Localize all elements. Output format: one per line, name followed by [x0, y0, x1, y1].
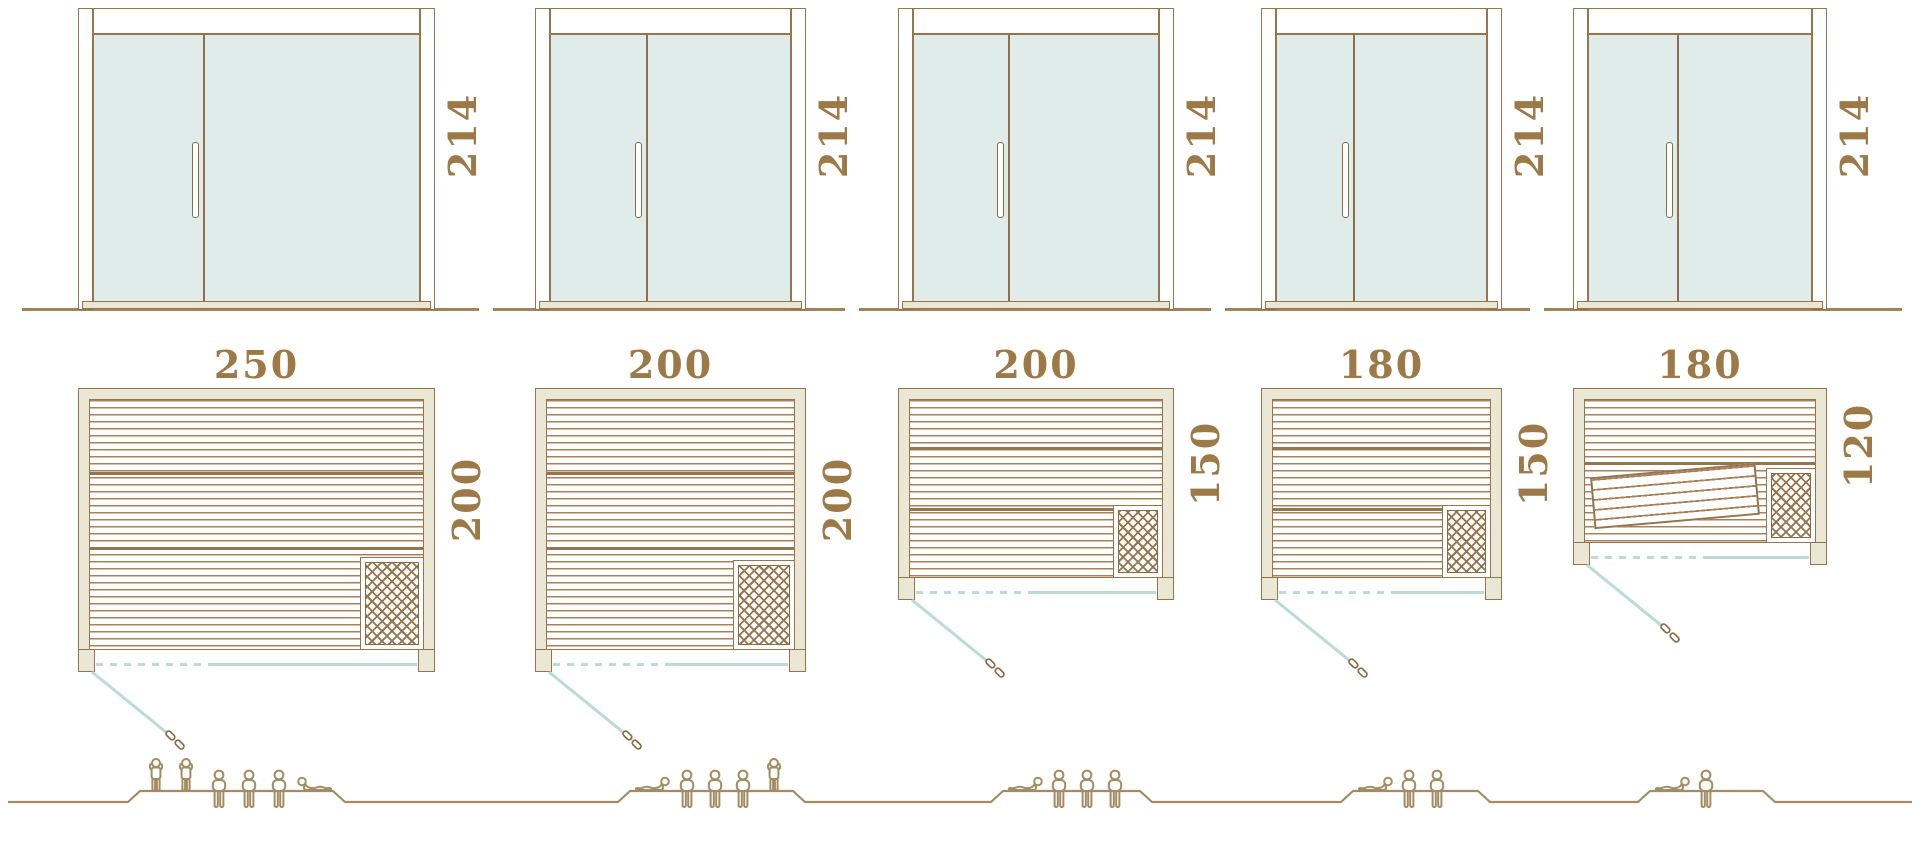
heater-grid — [1447, 510, 1486, 573]
door-height-text: 214 — [1508, 92, 1553, 177]
door-swing-line — [1587, 565, 1667, 630]
bench-edge-line — [90, 547, 423, 550]
person-seated-icon — [243, 771, 255, 807]
door-height-label: 214 — [1176, 8, 1228, 310]
plan-depth-text: 200 — [816, 456, 861, 541]
door-handle-icon — [622, 730, 642, 750]
door-height-label: 214 — [808, 8, 860, 310]
door-sill — [1265, 301, 1498, 309]
plan-left-post — [535, 649, 552, 672]
person-seated-icon — [213, 771, 225, 807]
door-header — [1588, 8, 1812, 34]
door-header — [93, 8, 420, 34]
door-right-post — [791, 8, 806, 310]
fixed-glass-line — [1028, 591, 1156, 594]
door-glass — [1276, 34, 1487, 302]
person-seated-icon — [681, 771, 693, 807]
person-lying-icon — [298, 778, 331, 790]
bench-edge-line — [547, 547, 794, 550]
capacity-group — [1359, 771, 1443, 807]
seating-capacity-ground-line — [8, 791, 1912, 802]
capacity-group — [1009, 771, 1121, 807]
fixed-glass-line — [1391, 591, 1484, 594]
door-swing-line — [912, 600, 992, 665]
plan-left-post — [78, 649, 95, 672]
fixed-glass-line — [665, 663, 788, 666]
door-leaf-divider — [1008, 35, 1010, 301]
door-glass — [1588, 34, 1812, 302]
door-handle — [635, 142, 642, 218]
door-handle-icon — [165, 730, 185, 750]
plan-left-post — [1573, 542, 1590, 565]
heater-grid — [738, 565, 790, 645]
door-handle — [1342, 142, 1349, 218]
heater-grid — [1771, 473, 1811, 538]
person-standing-icon — [180, 759, 192, 791]
plan-right-post — [1485, 577, 1502, 600]
plan-right-post — [789, 649, 806, 672]
bench-edge-line — [1585, 462, 1815, 465]
door-swing-line — [1275, 600, 1355, 665]
door-height-label: 214 — [1829, 8, 1881, 310]
plan-depth-text: 150 — [1512, 420, 1557, 505]
person-seated-icon — [737, 771, 749, 807]
door-right-post — [1487, 8, 1502, 310]
plan-depth-text: 150 — [1184, 420, 1229, 505]
door-sill — [82, 301, 431, 309]
door-leaf-divider — [646, 35, 648, 301]
door-glass — [550, 34, 791, 302]
door-handle — [192, 142, 199, 218]
door-height-text: 214 — [441, 92, 486, 177]
bench-edge-line — [910, 447, 1162, 450]
fixed-glass-line — [1703, 556, 1809, 559]
person-standing-icon — [150, 759, 162, 791]
door-leaf-divider — [1677, 35, 1679, 301]
door-left-post — [1573, 8, 1588, 310]
person-lying-icon — [1359, 778, 1392, 790]
heater-grid — [1118, 510, 1158, 573]
door-glass — [913, 34, 1159, 302]
door-swing-line — [549, 672, 629, 737]
door-handle-icon — [1660, 623, 1680, 643]
plan-right-post — [418, 649, 435, 672]
heater-grid — [365, 562, 419, 645]
plan-depth-label: 200 — [441, 388, 493, 650]
person-seated-icon — [1053, 771, 1065, 807]
bench-edge-line — [547, 472, 794, 475]
door-opening-dashed-line — [916, 591, 1023, 594]
door-leaf-divider — [1353, 35, 1355, 301]
door-right-post — [1159, 8, 1174, 310]
plan-left-post — [898, 577, 915, 600]
door-opening-dashed-line — [553, 663, 660, 666]
person-lying-icon — [1009, 778, 1042, 790]
plan-width-label: 180 — [1573, 342, 1827, 382]
door-header — [550, 8, 791, 34]
door-glass — [93, 34, 420, 302]
person-seated-icon — [1431, 771, 1443, 807]
person-standing-icon — [768, 759, 780, 791]
bench-edge-line — [90, 472, 423, 475]
door-right-post — [1812, 8, 1827, 310]
door-height-label: 214 — [1504, 8, 1556, 310]
plan-depth-text: 120 — [1837, 403, 1882, 488]
door-sill — [902, 301, 1170, 309]
door-right-post — [420, 8, 435, 310]
door-opening-dashed-line — [1279, 591, 1386, 594]
plan-depth-text: 200 — [445, 456, 490, 541]
door-leaf-divider — [203, 35, 205, 301]
door-left-post — [78, 8, 93, 310]
plan-depth-label: 200 — [812, 388, 864, 650]
capacity-group — [636, 759, 780, 807]
door-handle — [997, 142, 1004, 218]
plan-width-label: 200 — [898, 342, 1174, 382]
door-swing-line — [92, 672, 172, 737]
door-height-text: 214 — [1833, 92, 1878, 177]
door-sill — [539, 301, 802, 309]
person-seated-icon — [1109, 771, 1121, 807]
person-seated-icon — [709, 771, 721, 807]
person-lying-icon — [636, 778, 669, 790]
door-handle-icon — [1348, 658, 1368, 678]
door-handle — [1666, 142, 1673, 218]
door-height-text: 214 — [1180, 92, 1225, 177]
door-left-post — [535, 8, 550, 310]
door-opening-dashed-line — [1591, 556, 1698, 559]
door-handle-icon — [985, 658, 1005, 678]
plan-width-label: 200 — [535, 342, 806, 382]
door-sill — [1577, 301, 1823, 309]
door-left-post — [898, 8, 913, 310]
plan-width-label: 180 — [1261, 342, 1502, 382]
plan-right-post — [1810, 542, 1827, 565]
plan-left-post — [1261, 577, 1278, 600]
person-seated-icon — [1081, 771, 1093, 807]
door-opening-dashed-line — [96, 663, 203, 666]
person-lying-icon — [1656, 778, 1689, 790]
plan-width-label: 250 — [78, 342, 435, 382]
fixed-glass-line — [208, 663, 417, 666]
plan-depth-label: 150 — [1508, 388, 1560, 578]
plan-depth-label: 150 — [1180, 388, 1232, 578]
door-left-post — [1261, 8, 1276, 310]
door-height-text: 214 — [812, 92, 857, 177]
plan-depth-label: 120 — [1833, 388, 1885, 543]
door-height-label: 214 — [437, 8, 489, 310]
person-seated-icon — [1700, 771, 1712, 807]
capacity-group — [1656, 771, 1712, 807]
person-seated-icon — [1403, 771, 1415, 807]
plan-right-post — [1157, 577, 1174, 600]
bench-edge-line — [1273, 447, 1490, 450]
capacity-group — [150, 759, 331, 807]
door-header — [913, 8, 1159, 34]
door-header — [1276, 8, 1487, 34]
person-seated-icon — [273, 771, 285, 807]
sauna-sizes-diagram: 2142502002142002002142001502141801502141… — [0, 0, 1920, 843]
